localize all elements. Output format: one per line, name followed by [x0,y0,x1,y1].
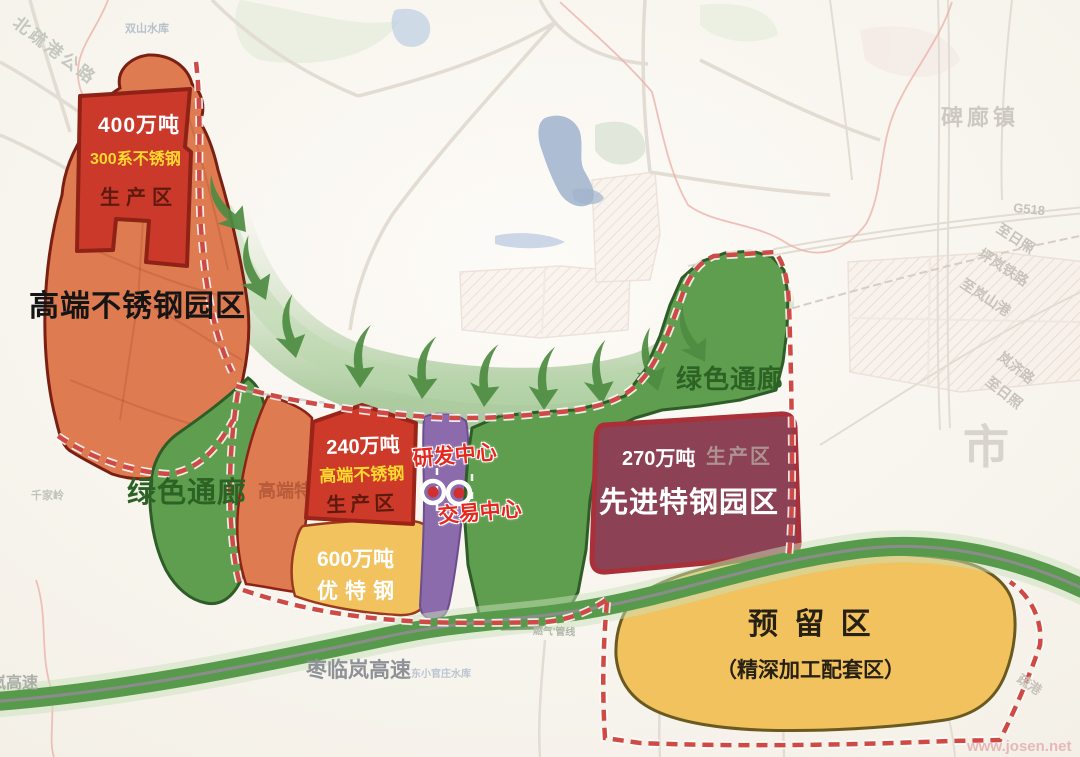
zone-mid-production-block [306,405,416,524]
zone-advanced-park [592,414,799,572]
map-canvas: 高端特钢 [0,0,1080,757]
zone-youte-block [292,520,433,615]
planning-map: 高端特钢 [0,0,1080,757]
